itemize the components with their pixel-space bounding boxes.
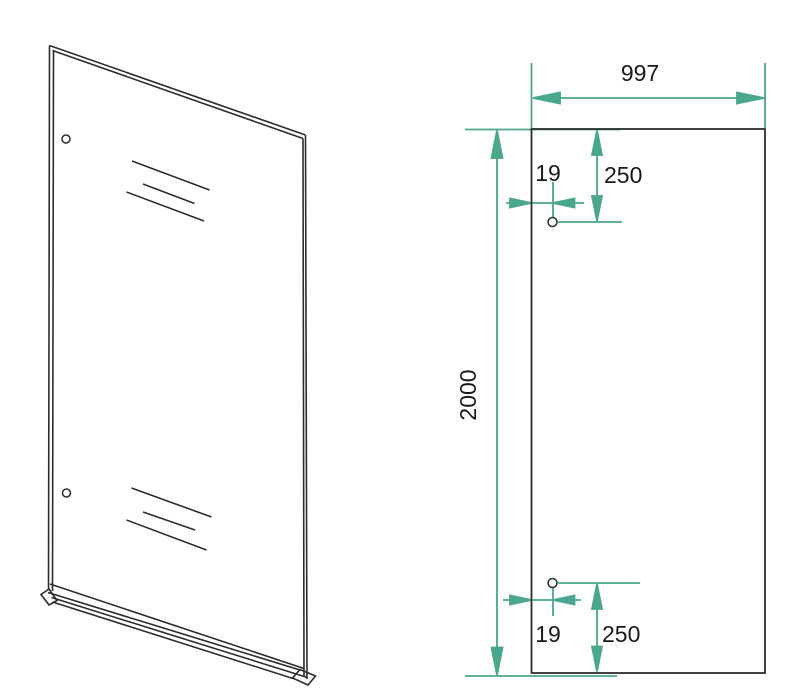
dim-top-250-arrow-up: [592, 131, 602, 156]
glass-right-edge-outer: [306, 135, 308, 679]
dim-top-hole-edge-offset-label: 19: [535, 160, 561, 186]
front-hole-bottom: [548, 579, 557, 588]
technical-drawing-canvas: 997 2000 19 250 19 250: [0, 0, 800, 698]
dim-top-19-arrow-left: [553, 199, 575, 208]
panel-outline: [532, 129, 766, 673]
dim-top-19-arrow-right: [510, 199, 532, 208]
dim-height-label: 2000: [455, 369, 481, 420]
mounting-hole-bottom: [63, 489, 71, 497]
dim-bottom-hole-bottom-offset-label: 250: [602, 621, 640, 647]
dim-bottom-250-arrow-down: [592, 647, 602, 672]
dim-bottom-hole-edge-offset-label: 19: [535, 621, 561, 647]
dim-width-arrow-right: [737, 93, 764, 104]
glass-reflection-hatch-lower: [127, 488, 212, 550]
glass-reflection-hatch-upper: [127, 161, 210, 221]
dim-bottom-19-arrow-right: [510, 596, 532, 605]
dim-bottom-hole-edge-offset: [503, 588, 581, 616]
dim-top-hole-edge-offset: [506, 182, 584, 218]
dim-bottom-19-arrow-left: [553, 596, 575, 605]
bottom-seal-strip: [41, 589, 316, 685]
dim-height-arrow-down: [492, 648, 503, 676]
dimension-annotations: [465, 63, 765, 676]
dim-width-label: 997: [621, 60, 659, 86]
dim-height-arrow-up: [492, 131, 503, 159]
seal-left-end-cap: [41, 589, 57, 605]
glass-panel-front-view: [532, 129, 766, 673]
glass-left-edge-inner: [53, 50, 54, 591]
glass-panel-perspective-view: [41, 46, 316, 686]
dim-top-hole-top-offset-label: 250: [604, 162, 642, 188]
dimension-labels: 997 2000 19 250 19 250: [455, 60, 659, 647]
seal-strip-line-2: [52, 598, 308, 678]
dim-top-250-arrow-down: [592, 196, 602, 221]
seal-strip-line-3: [53, 602, 294, 679]
dim-bottom-250-arrow-up: [592, 584, 602, 609]
technical-drawing-page: 997 2000 19 250 19 250: [0, 0, 800, 698]
glass-left-edge-outer: [49, 46, 50, 589]
seal-right-end-cap: [293, 670, 316, 686]
glass-right-edge-inner: [303, 139, 304, 678]
mounting-hole-top: [62, 135, 70, 143]
seal-strip-line-1: [48, 593, 300, 671]
dim-width-arrow-left: [533, 93, 560, 104]
glass-top-edge-outer: [50, 46, 306, 136]
front-hole-top: [548, 218, 557, 227]
glass-top-edge-inner: [53, 51, 304, 139]
glass-bottom-edge: [50, 584, 304, 669]
